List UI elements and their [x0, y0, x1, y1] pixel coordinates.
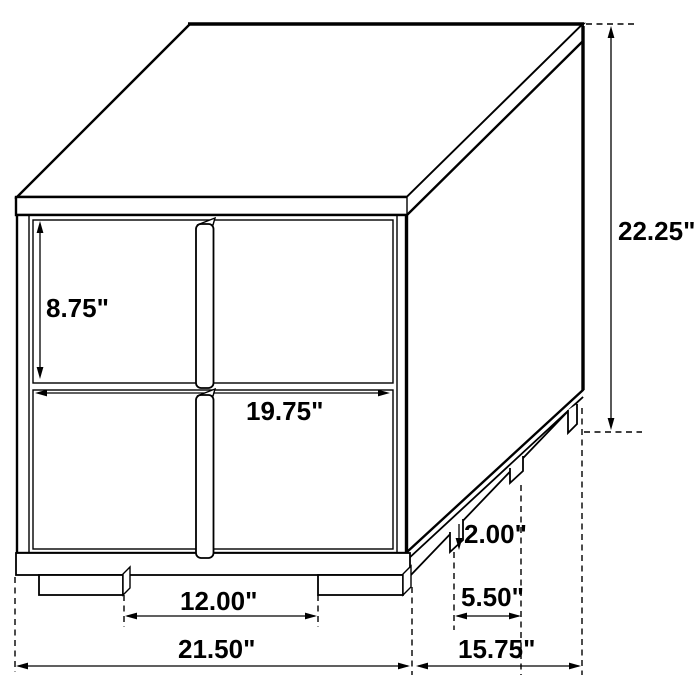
dim-label-leg-height: 2.00": [464, 519, 527, 549]
dim-label-overall-height: 22.25": [618, 216, 695, 246]
dim-label-overall-width: 21.50": [178, 634, 255, 664]
front-leg-left: [39, 575, 123, 595]
dim-front-leg-gap: 12.00": [124, 586, 318, 627]
side-leg-back: [568, 404, 577, 433]
dim-label-front-leg-gap: 12.00": [180, 586, 257, 616]
drawer-top-handle: [196, 224, 214, 388]
dim-leg-height: 2.00": [456, 519, 527, 550]
dim-label-drawer-height: 8.75": [46, 293, 109, 323]
top-panel-front-edge: [16, 197, 408, 215]
dim-overall-height: 22.25": [584, 24, 695, 432]
nightstand-dimension-diagram: 8.75" 19.75" 22.25" 12.00" 21.50": [0, 0, 700, 700]
dim-label-front-width: 19.75": [246, 396, 323, 426]
front-leg-right: [318, 575, 403, 595]
dimension-diagram-page: 8.75" 19.75" 22.25" 12.00" 21.50": [0, 0, 700, 700]
drawer-bottom-handle: [196, 395, 214, 558]
dim-label-side-leg-gap: 5.50": [461, 582, 524, 612]
dim-label-overall-depth: 15.75": [458, 634, 535, 664]
